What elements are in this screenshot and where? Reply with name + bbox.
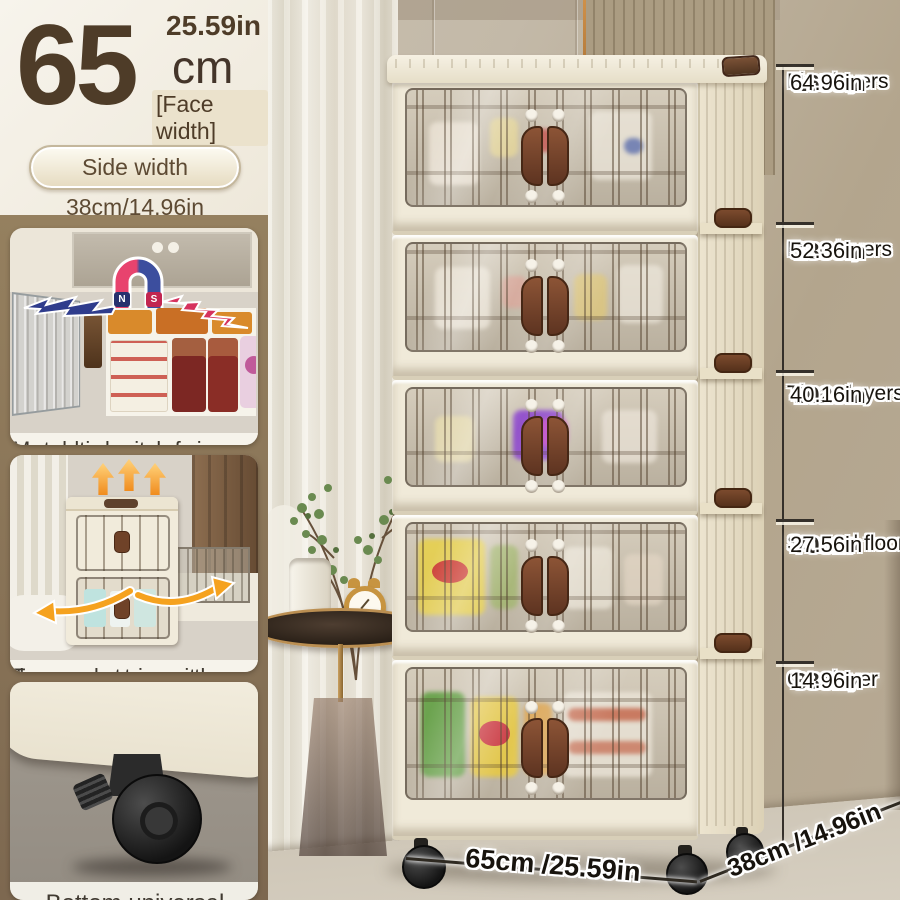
cabinet-lid bbox=[387, 55, 767, 83]
wall-corner-shade bbox=[884, 520, 900, 810]
measurement-inches: 64.96in bbox=[787, 70, 862, 96]
dimension-tick bbox=[776, 64, 814, 67]
caster-wheel-icon bbox=[112, 774, 202, 864]
cabinet-layer-5 bbox=[392, 660, 698, 840]
feature-card-two-ways: Two ways to open the door and retrieve i… bbox=[10, 455, 258, 672]
caption-line: door and retrieve items bbox=[12, 665, 237, 672]
layer-1-handle bbox=[519, 126, 571, 186]
face-width-unit: cm bbox=[172, 40, 233, 94]
side-ledge bbox=[700, 648, 762, 659]
card-caption: Bottom universal pulley bbox=[10, 882, 258, 900]
header-info-box: 65 25.59in cm [Face width] Side width 38… bbox=[0, 0, 268, 215]
magnet-north-pole: N bbox=[114, 292, 130, 307]
dimension-tick bbox=[776, 222, 814, 225]
face-width-label: [Face width] bbox=[152, 90, 268, 146]
card-caption: Two ways to open the door and retrieve i… bbox=[10, 660, 258, 672]
feature-column: N S Magnetic switch for portable door op… bbox=[0, 215, 268, 900]
side-handle bbox=[714, 633, 752, 653]
cabinet-side-panel bbox=[698, 68, 764, 834]
feature-card-pulley: Bottom universal pulley bbox=[10, 682, 258, 900]
side-ledge bbox=[700, 368, 762, 379]
up-arrow-icon bbox=[92, 463, 114, 495]
side-handle bbox=[714, 353, 752, 373]
cabinet-layer-3 bbox=[392, 380, 698, 515]
layer-3-handle bbox=[519, 416, 571, 476]
side-ledge bbox=[700, 503, 762, 514]
lightning-left-icon bbox=[24, 294, 116, 320]
lid-clip bbox=[721, 55, 760, 78]
curved-arrow-icon bbox=[34, 573, 234, 631]
dimension-tick bbox=[776, 519, 814, 522]
cabinet-layer-1 bbox=[392, 81, 698, 235]
caption-line: portable door opening bbox=[12, 438, 226, 445]
cabinet-layer-4 bbox=[392, 515, 698, 660]
face-width-inches: 25.59in bbox=[166, 10, 261, 42]
layer-2-handle bbox=[519, 276, 571, 336]
measurement-inches: 14.96in bbox=[787, 668, 862, 694]
measurement-inches: 27.56in bbox=[787, 532, 862, 558]
card-caption: Magnetic switch for portable door openin… bbox=[10, 433, 258, 445]
dimension-vertical-line bbox=[782, 64, 784, 858]
side-ledge bbox=[700, 223, 762, 234]
caption-line: Bottom universal pulley bbox=[12, 890, 258, 900]
side-width-badge: Side width 38cm/14.96in bbox=[29, 145, 241, 190]
dimension-tick bbox=[776, 370, 814, 373]
measurement-inches: 40.16in bbox=[787, 382, 862, 408]
lightning-right-icon bbox=[162, 294, 248, 330]
side-table-stem bbox=[338, 644, 343, 702]
bottle bbox=[84, 312, 102, 368]
feature-card-magnetic-switch: N S Magnetic switch for portable door op… bbox=[10, 228, 258, 445]
layer-4-handle bbox=[519, 556, 571, 616]
cabinet-layer-2 bbox=[392, 235, 698, 380]
side-handle bbox=[714, 208, 752, 228]
product-image-stage: Five layers 165cm 64.96in Four layers 13… bbox=[0, 0, 900, 900]
up-arrow-icon bbox=[118, 459, 140, 491]
side-handle bbox=[714, 488, 752, 508]
layer-5-handle bbox=[519, 718, 571, 778]
face-width-value: 65 bbox=[16, 14, 135, 119]
storage-cabinet bbox=[392, 55, 764, 890]
side-table-base bbox=[299, 698, 387, 856]
measurement-inches: 52.36in bbox=[787, 238, 862, 264]
dimension-tick bbox=[776, 661, 814, 664]
up-arrow-icon bbox=[144, 463, 166, 495]
magnet-south-pole: S bbox=[146, 292, 162, 307]
